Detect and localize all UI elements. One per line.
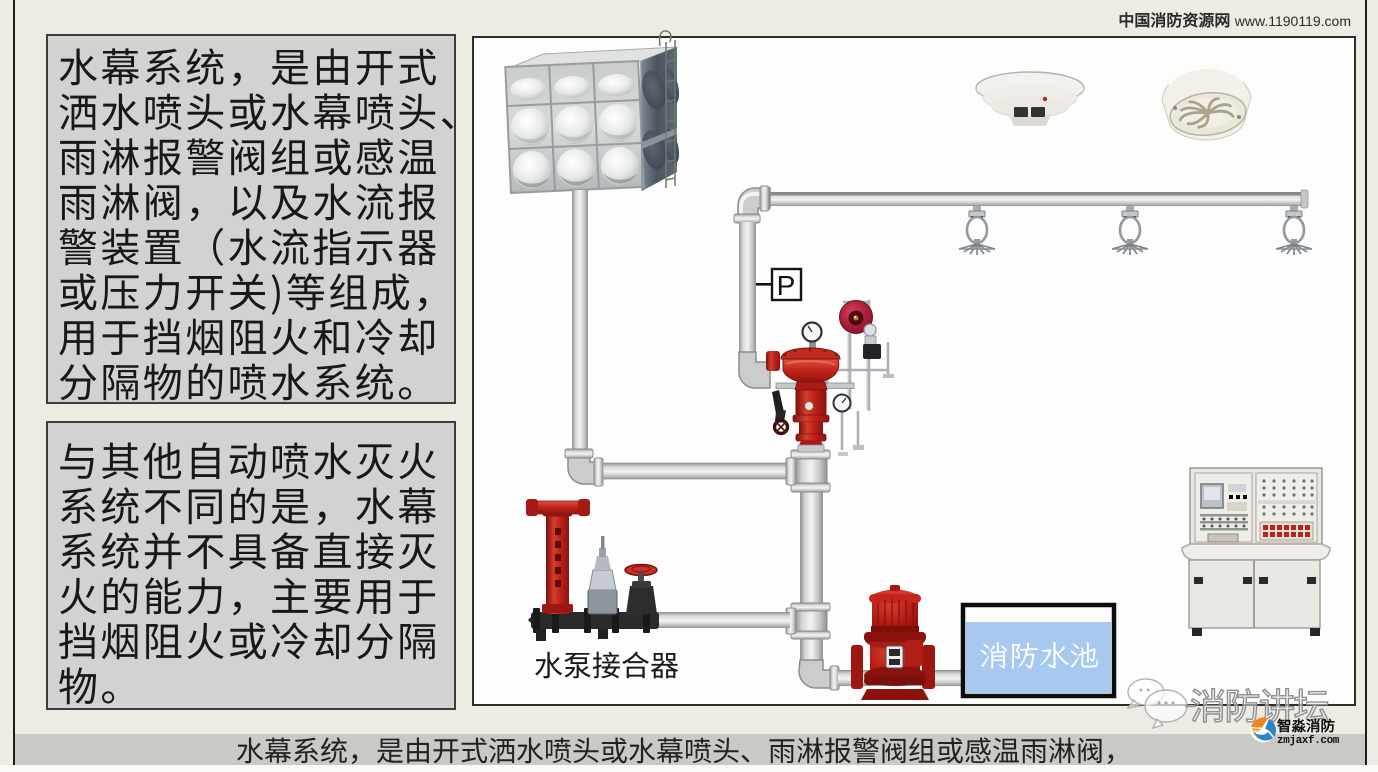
svg-text:水泵接合器: 水泵接合器: [534, 643, 679, 685]
svg-text:P: P: [777, 270, 796, 301]
svg-text:消防水池: 消防水池: [979, 635, 1099, 675]
svg-text:智淼消防: 智淼消防: [1277, 715, 1335, 736]
svg-text:zmjaxf.com: zmjaxf.com: [1277, 735, 1340, 747]
